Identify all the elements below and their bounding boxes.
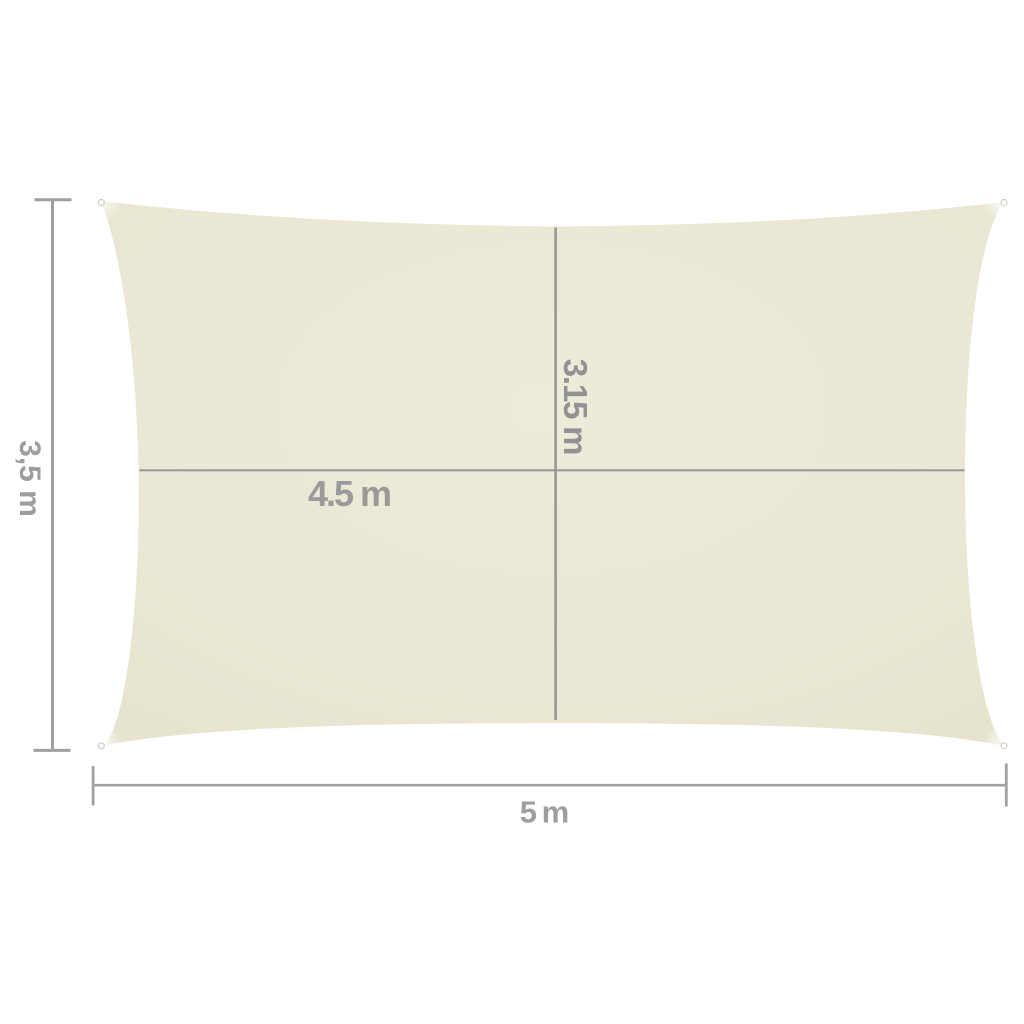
svg-text:4.5 m: 4.5 m — [308, 473, 390, 514]
svg-text:3,5 m: 3,5 m — [13, 440, 46, 517]
svg-text:3.15 m: 3.15 m — [557, 359, 594, 455]
svg-text:5 m: 5 m — [520, 795, 568, 830]
